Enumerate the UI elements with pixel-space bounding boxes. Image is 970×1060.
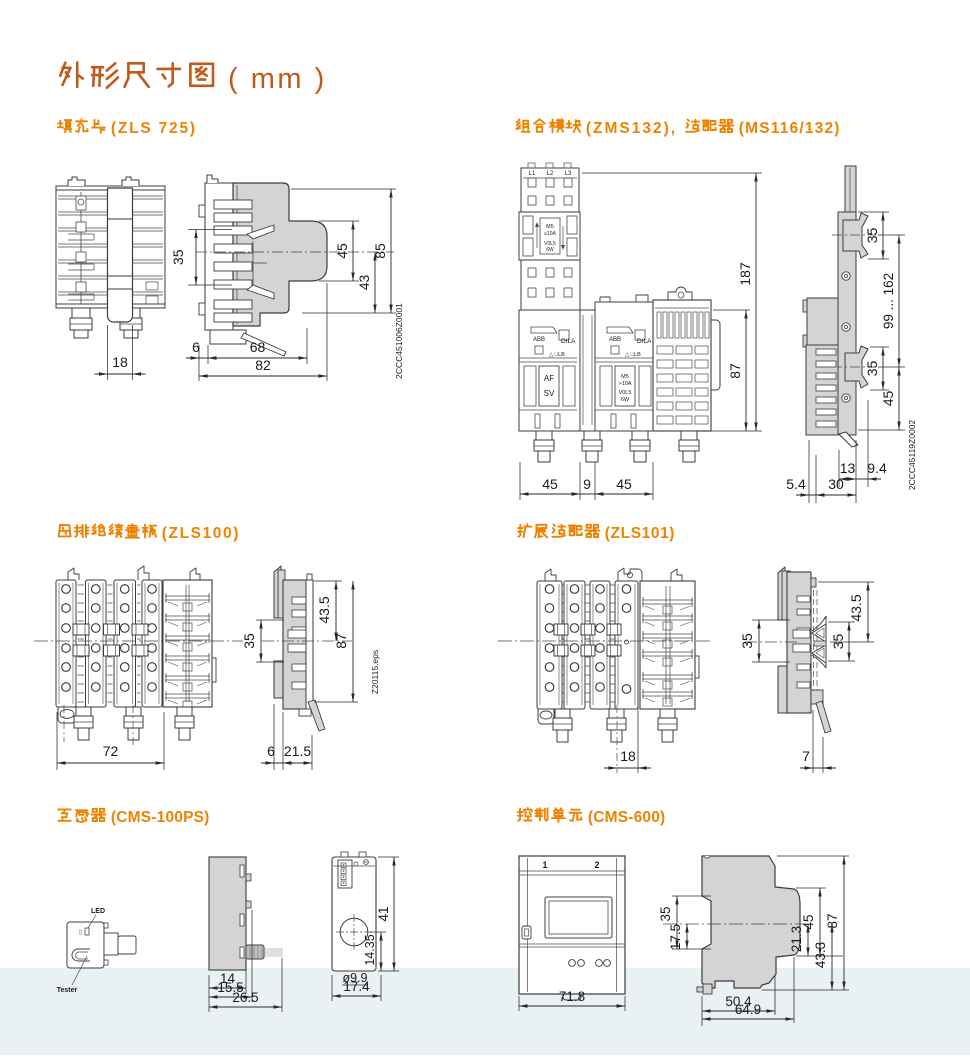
- svg-text:35: 35: [658, 906, 673, 921]
- svg-text:35: 35: [170, 249, 186, 265]
- svg-text:△ □LB: △ □LB: [625, 352, 641, 358]
- svg-text:V0L5: V0L5: [619, 390, 632, 396]
- svg-text:187: 187: [737, 262, 753, 286]
- svg-text:5.4: 5.4: [786, 476, 806, 492]
- svg-text:(ZLS101): (ZLS101): [605, 525, 675, 542]
- svg-text:≤10A: ≤10A: [544, 231, 556, 237]
- svg-text:45: 45: [616, 476, 632, 492]
- svg-text:43.5: 43.5: [316, 596, 332, 623]
- svg-text:41: 41: [376, 906, 391, 921]
- svg-text:43.5: 43.5: [848, 594, 864, 621]
- svg-text:9.4: 9.4: [867, 460, 887, 476]
- svg-text:21.3: 21.3: [789, 926, 804, 952]
- svg-text:18: 18: [112, 354, 128, 370]
- svg-text:7: 7: [802, 748, 810, 764]
- svg-text:68: 68: [250, 339, 266, 355]
- svg-text:(CMS-100PS): (CMS-100PS): [111, 809, 210, 826]
- svg-text:6W: 6W: [621, 397, 630, 403]
- svg-text:6: 6: [267, 743, 275, 759]
- svg-text:6W: 6W: [546, 247, 554, 253]
- svg-text:L2: L2: [547, 171, 554, 177]
- svg-text:35: 35: [830, 634, 846, 650]
- svg-text:AF: AF: [544, 374, 554, 383]
- svg-text:△ □LB: △ □LB: [549, 352, 565, 358]
- svg-text:26.5: 26.5: [232, 990, 258, 1005]
- svg-text:72: 72: [103, 743, 119, 759]
- svg-text:( mm ): ( mm ): [228, 63, 327, 95]
- svg-text:9: 9: [583, 476, 591, 492]
- svg-text:>10A: >10A: [619, 381, 632, 387]
- svg-text:ABB: ABB: [609, 337, 621, 343]
- svg-text:M5: M5: [546, 224, 554, 230]
- svg-text:(ZLS100): (ZLS100): [162, 525, 240, 542]
- svg-text:6: 6: [192, 339, 200, 355]
- svg-text:13: 13: [840, 460, 856, 476]
- svg-text:L1: L1: [529, 171, 536, 177]
- svg-text:35: 35: [864, 361, 880, 377]
- svg-text:Z20115.eps: Z20115.eps: [370, 650, 380, 694]
- svg-text:43: 43: [356, 275, 372, 291]
- svg-text:18: 18: [620, 748, 636, 764]
- svg-text:DILA: DILA: [561, 338, 576, 345]
- svg-text:LED: LED: [91, 908, 105, 915]
- svg-text:45: 45: [334, 243, 350, 259]
- svg-text:2CCC45119Z0002: 2CCC45119Z0002: [907, 420, 917, 491]
- svg-text:45: 45: [880, 391, 896, 407]
- svg-text:17.4: 17.4: [343, 979, 370, 994]
- svg-text:ABB: ABB: [533, 337, 545, 343]
- svg-text:(ZLS 725): (ZLS 725): [111, 120, 197, 137]
- svg-text:SV: SV: [544, 389, 555, 398]
- svg-text:71.8: 71.8: [559, 989, 585, 1004]
- svg-text:DILA: DILA: [637, 338, 652, 345]
- svg-text:64.9: 64.9: [735, 1002, 761, 1017]
- svg-text:30: 30: [828, 476, 844, 492]
- svg-text:87: 87: [825, 913, 840, 928]
- svg-text:1: 1: [542, 860, 547, 870]
- svg-text:14.35: 14.35: [363, 934, 377, 965]
- svg-text:21.5: 21.5: [284, 743, 311, 759]
- svg-text:43.3: 43.3: [813, 942, 828, 968]
- svg-text:35: 35: [241, 633, 257, 649]
- svg-text:(ZMS132),: (ZMS132),: [586, 120, 677, 137]
- svg-text:Tester: Tester: [57, 987, 78, 994]
- svg-text:2CCC451006Z0001: 2CCC451006Z0001: [394, 303, 404, 379]
- svg-text:CT: CT: [78, 929, 83, 935]
- svg-text:L3: L3: [565, 171, 572, 177]
- svg-text:45: 45: [542, 476, 558, 492]
- svg-text:2: 2: [594, 860, 599, 870]
- svg-text:17.5: 17.5: [668, 924, 683, 950]
- svg-text:(MS116/132): (MS116/132): [739, 120, 841, 137]
- svg-text:85: 85: [372, 243, 388, 259]
- svg-text:35: 35: [739, 633, 755, 649]
- svg-text:M5: M5: [621, 374, 629, 380]
- svg-text:87: 87: [333, 633, 349, 649]
- svg-text:35: 35: [864, 228, 880, 244]
- svg-text:(CMS-600): (CMS-600): [588, 809, 666, 826]
- svg-text:99 ... 162: 99 ... 162: [881, 273, 896, 329]
- svg-text:82: 82: [255, 357, 271, 373]
- svg-text:87: 87: [727, 363, 743, 379]
